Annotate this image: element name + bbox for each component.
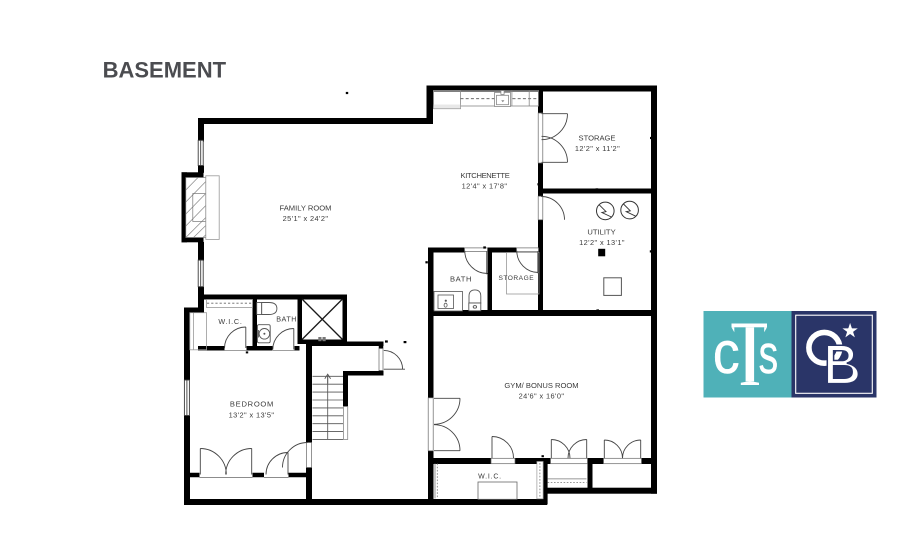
svg-text:STORAGE: STORAGE bbox=[498, 275, 534, 282]
svg-text:W.I.C.: W.I.C. bbox=[478, 474, 502, 481]
svg-text:12'2" x 11'2": 12'2" x 11'2" bbox=[575, 144, 620, 153]
svg-text:BATH: BATH bbox=[450, 275, 472, 284]
svg-text:25'1" x 24'2": 25'1" x 24'2" bbox=[283, 214, 329, 223]
svg-text:STORAGE: STORAGE bbox=[579, 134, 616, 143]
svg-text:12'2" x 13'1": 12'2" x 13'1" bbox=[579, 238, 625, 247]
svg-text:24'6" x 16'0": 24'6" x 16'0" bbox=[519, 392, 565, 401]
svg-text:BATH: BATH bbox=[276, 315, 297, 324]
svg-text:BEDROOM: BEDROOM bbox=[230, 400, 274, 409]
svg-text:FAMILY ROOM: FAMILY ROOM bbox=[279, 204, 331, 213]
svg-text:12'4" x 17'8": 12'4" x 17'8" bbox=[462, 182, 508, 191]
svg-text:W.I.C.: W.I.C. bbox=[218, 317, 242, 326]
svg-text:KITCHENETTE: KITCHENETTE bbox=[461, 171, 510, 180]
svg-text:c: c bbox=[713, 320, 740, 386]
svg-text:13'2" x 13'5": 13'2" x 13'5" bbox=[229, 411, 275, 420]
svg-text:UTILITY: UTILITY bbox=[587, 228, 615, 237]
svg-text:BASEMENT: BASEMENT bbox=[103, 58, 227, 83]
svg-text:GYM/ BONUS ROOM: GYM/ BONUS ROOM bbox=[504, 381, 578, 390]
svg-text:s: s bbox=[759, 323, 779, 385]
